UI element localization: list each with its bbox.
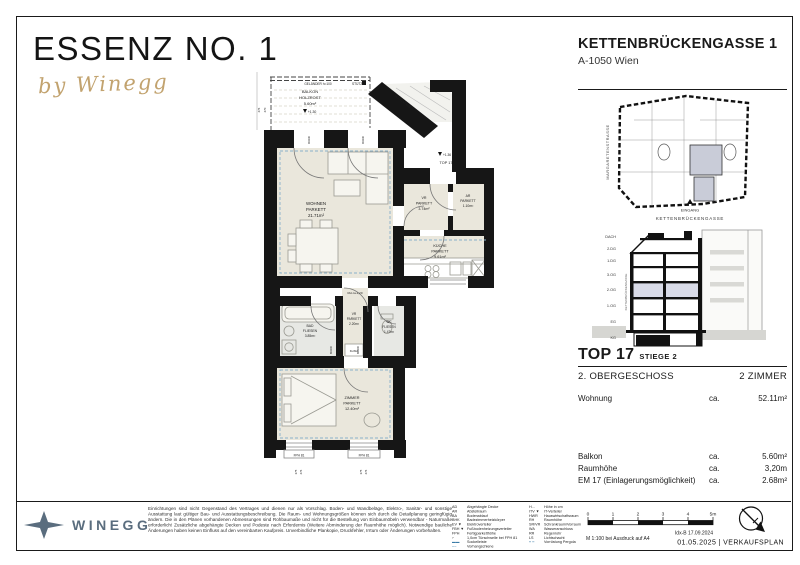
section-level-labels: DACH 2.DG 1.DG 3.OG 2.OG 1.OG EG KG [605,235,616,340]
vr1-l2: PARKETT [416,202,433,206]
win-dim-2b: 276 [364,469,368,474]
bad-l2: FLIESEN [303,329,318,333]
door-dim-a1: 90/230 [307,135,311,143]
win-dim-1a: 375 [294,469,298,474]
vr2-l1: VR [352,312,357,316]
strip-dim-b: 270 [263,107,267,112]
strip-dim-a: 276 [257,107,261,112]
balcony-l1: BALKON [302,89,318,94]
door-dim-b1: 80/200 [329,345,333,353]
svg-text:DACH: DACH [605,235,616,239]
door-dim-b2: 80/200 [356,345,360,353]
info-row-wohnung: Wohnungca.52.11m² [578,394,787,403]
address-subtitle: A-1050 Wien [578,55,639,67]
stuetze-label: STÜTZE [352,82,364,86]
verkaufsplan-page: ESSENZ NO. 1 by Winegg KETTENBRÜCKENGASS… [0,0,800,565]
index-note: Idx-B 17.09.2024 [675,531,713,537]
vr1-l1: VR [422,196,427,200]
compass-star-icon [24,511,64,539]
section-street-label: KETTENBRÜCKENGASSE [624,274,628,311]
wc-l2: FLIESEN [382,325,396,329]
street-bottom-label: KETTENBRÜCKENGASSE [656,216,724,221]
win-dim-1b: 276 [299,469,303,474]
entry-top-label: TOP 17 [440,161,453,165]
svg-text:3: 3 [662,512,665,518]
vr2-l3: 2.20m² [349,322,359,326]
legal-disclaimer: Einrichtungen sind nicht Gegenstand des … [148,506,452,534]
info-row-raumhoehe: Raumhöheca.3,20m [578,464,787,473]
scale-and-north: 0 1 2 3 4 5m M 1:100 bei Ausdruck auf A4… [584,505,788,549]
svg-text:1.DG: 1.DG [607,259,616,263]
svg-text:2.DG: 2.DG [607,247,616,251]
scale-ticks [588,517,713,521]
win-dim-2a: 375 [359,469,363,474]
site-and-section: MARGARETENSTRASSE EINGANG KETTENBRÜCKENG… [575,88,790,350]
plan-date-type: 01.05.2025 | VERKAUFSPLAN [677,540,784,547]
ar-l3: 1.10m² [463,204,474,208]
svg-text:2.OG: 2.OG [607,288,616,292]
kueche-l3: 9.61m² [434,255,447,259]
svg-text:0: 0 [587,512,590,518]
entry-level: +1.36 [443,153,451,157]
unit-info-panel: TOP 17STIEGE 2 2. OBERGESCHOSS 2 ZIMMER … [578,346,787,494]
building-section: DACH 2.DG 1.DG 3.OG 2.OG 1.OG EG KG KETT… [592,230,766,346]
rh-note: RH ca.2,20 [347,291,362,295]
wohnen-l3: 21.71m² [308,213,325,218]
info-row-em: EM 17 (Einlagerungsmöglichkeit)ca.2.68m² [578,476,787,485]
entrance-label: EINGANG [681,208,699,213]
zimmer-l3: 12.40m² [345,407,360,411]
wohnen-l2: PARKETT [306,207,326,212]
bad-l3: 3.85m² [305,334,316,338]
scale-note: M 1:100 bei Ausdruck auf A4 [586,536,650,542]
address-title: KETTENBRÜCKENGASSE 1 [578,36,777,52]
street-left-label: MARGARETENSTRASSE [605,124,610,179]
svg-text:5m: 5m [710,512,717,518]
floor-label: 2. OBERGESCHOSS [578,371,674,382]
rooms-count: 2 ZIMMER [739,371,787,382]
footer-rule [16,501,791,502]
brand-signature: by Winegg [38,70,170,99]
wc-l3: 1.47m² [384,330,394,334]
svg-text:2: 2 [637,512,640,518]
vr1-l3: 3.74m² [418,207,430,211]
zimmer-l1: ZIMMER [345,396,360,400]
highlighted-unit [690,145,722,175]
kueche-l2: PARKETT [431,250,449,254]
wc-l1: WC [386,320,392,324]
highlighted-unit-2 [694,177,714,201]
railing-label: GELÄNDER h=100 [304,82,332,86]
ar-l1: AR [466,194,471,198]
info-rule [578,366,787,367]
site-plan: MARGARETENSTRASSE EINGANG KETTENBRÜCKENG… [605,96,748,221]
fph-label-right: FPH 81 [359,454,370,458]
legend-col-1: ADAbgehängte Decke ARAbstellraum BABoden… [452,505,525,549]
door-dim-a2: 90/230 [361,135,365,143]
legend-col-2: H…Höhe in cm ITV ▼IT-Verteiler HWRHauswi… [529,505,583,549]
svg-text:3.OG: 3.OG [607,273,616,277]
legend: ADAbgehängte Decke ARAbstellraum BABoden… [452,505,583,549]
svg-text:1.OG: 1.OG [607,304,616,308]
brand-title: ESSENZ NO. 1 [33,30,278,68]
balcony-level: +1.30 [308,110,317,114]
north-arrow-icon [740,507,766,532]
scale-tick-labels: 0 1 2 3 4 5m [587,512,717,518]
kueche-l1: KÜCHE [433,244,447,248]
ar-l2: PARKETT [460,199,475,203]
stiege-label: STIEGE 2 [639,352,677,361]
info-row-balkon: Balkonca.5.60m² [578,452,787,461]
winegg-logo: WINEGG [22,506,162,544]
svg-text:EG: EG [611,320,617,324]
vr2-l2: PARKETT [347,317,362,321]
wohnen-l1: WOHNEN [306,201,326,206]
fph-label-left: FPH 81 [294,454,305,458]
winegg-wordmark: WINEGG [72,517,151,533]
svg-text:KG: KG [611,336,617,340]
bad-l1: BAD [307,324,315,328]
svg-text:4: 4 [687,512,690,518]
floor-plan: GELÄNDER h=100 STÜTZE BALKON HOLZROST 5.… [250,68,520,496]
svg-text:1: 1 [612,512,615,518]
unit-number: TOP 17 [578,346,634,363]
zimmer-l2: PARKETT [343,402,361,406]
balcony-l2: HOLZROST [299,95,321,100]
balcony-l3: 5.60m² [304,101,317,106]
